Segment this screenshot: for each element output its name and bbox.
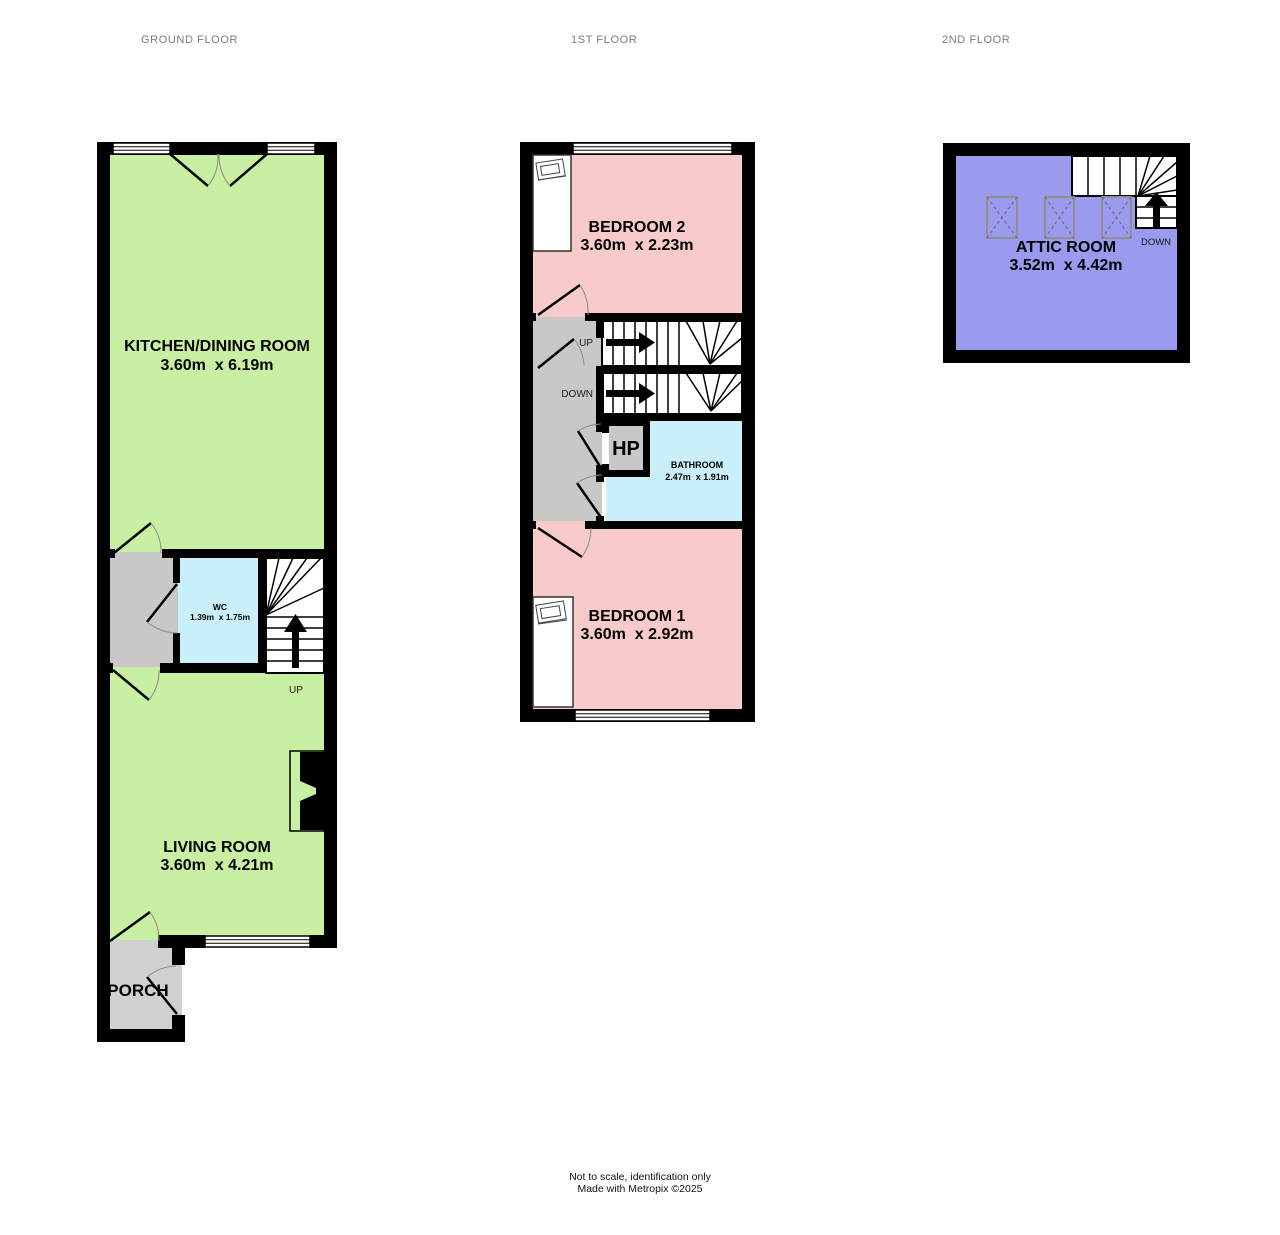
ground-floor-title: GROUND FLOOR [141, 34, 238, 46]
bathroom-room-ext [606, 473, 648, 525]
stairs-up-icon [266, 558, 324, 673]
ground-floor-plan: KITCHEN/DINING ROOM 3.60m x 6.19m WC 1.3… [95, 140, 340, 1045]
bed-icon-bedroom1 [533, 597, 573, 707]
kitchen-label: KITCHEN/DINING ROOM [124, 338, 310, 355]
window-living-room [205, 936, 310, 947]
bedroom2-dims: 3.60m x 2.23m [581, 237, 694, 254]
disclaimer: Not to scale, identification only Made w… [0, 1172, 1280, 1195]
disclaimer-line2: Made with Metropix ©2025 [0, 1184, 1280, 1196]
hallway [100, 552, 180, 672]
stairs-up-flight-icon [602, 321, 742, 366]
bedroom2-label: BEDROOM 2 [589, 219, 686, 236]
first-floor-plan: BEDROOM 2 3.60m x 2.23m UP DOWN HP BATHR… [515, 140, 760, 725]
window-kitchen-right [267, 143, 315, 154]
chimney-breast [290, 751, 324, 831]
attic-dims: 3.52m x 4.42m [1010, 257, 1123, 274]
stairs-down-label: DOWN [561, 389, 593, 400]
hp-label: HP [612, 438, 640, 460]
bathroom-dims: 2.47m x 1.91m [665, 472, 729, 482]
window-bedroom1 [575, 710, 710, 721]
bedroom1-dims: 3.60m x 2.92m [581, 626, 694, 643]
wc-dims: 1.39m x 1.75m [190, 612, 250, 622]
second-floor-title: 2ND FLOOR [942, 34, 1010, 46]
wc-label: WC [213, 602, 227, 612]
bedroom1-label: BEDROOM 1 [589, 608, 686, 625]
stairs-up-label: UP [289, 685, 303, 696]
living-label: LIVING ROOM [163, 839, 271, 856]
attic-label: ATTIC ROOM [1016, 239, 1116, 256]
stairs-up-label: UP [579, 338, 593, 349]
first-floor-title: 1ST FLOOR [571, 34, 637, 46]
window-kitchen-left [113, 143, 170, 154]
bathroom-label: BATHROOM [671, 460, 723, 470]
bed-icon-bedroom2 [533, 155, 571, 251]
floorplan-canvas: GROUND FLOOR 1ST FLOOR 2ND FLOOR [0, 0, 1280, 1235]
second-floor-plan: DOWN ATTIC ROOM 3.52m x 4.42m [940, 140, 1192, 366]
stairs-down-label: DOWN [1141, 237, 1171, 248]
kitchen-dims: 3.60m x 6.19m [161, 357, 274, 374]
disclaimer-line1: Not to scale, identification only [0, 1172, 1280, 1184]
stairs-down-flight-icon [602, 373, 742, 414]
window-bedroom2 [573, 143, 732, 154]
porch-label: PORCH [107, 981, 168, 1000]
living-dims: 3.60m x 4.21m [161, 857, 274, 874]
